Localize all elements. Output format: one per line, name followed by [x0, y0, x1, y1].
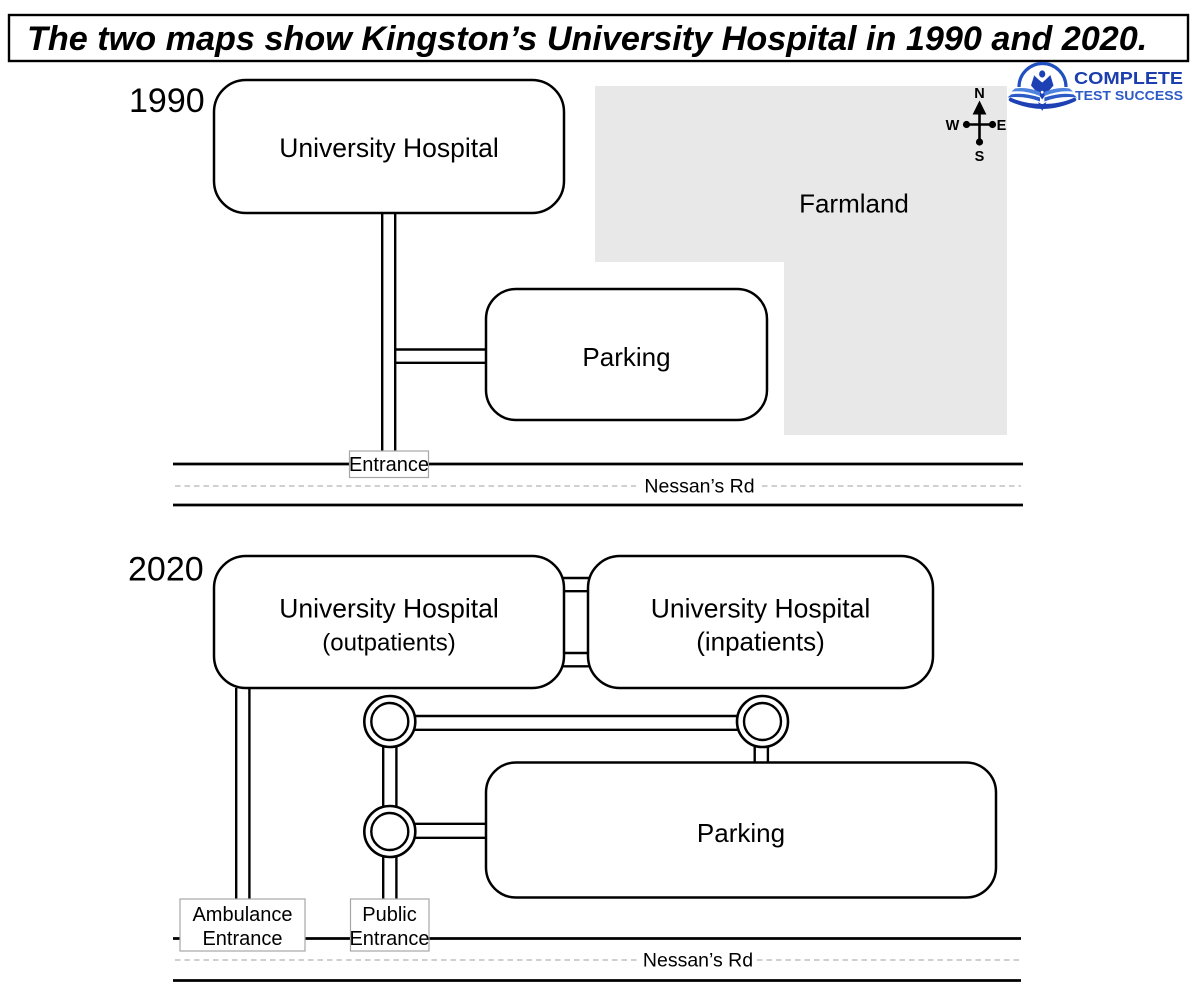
- svg-text:Nessan’s Rd: Nessan’s Rd: [643, 950, 753, 972]
- svg-text:TEST SUCCESS: TEST SUCCESS: [1075, 88, 1183, 103]
- svg-text:Ambulance: Ambulance: [192, 904, 292, 926]
- svg-text:Farmland: Farmland: [799, 189, 909, 219]
- svg-text:Entrance: Entrance: [349, 454, 429, 476]
- svg-text:E: E: [997, 118, 1007, 134]
- svg-text:University Hospital: University Hospital: [279, 133, 498, 163]
- svg-text:W: W: [946, 118, 960, 134]
- svg-text:The two maps show Kingston’s U: The two maps show Kingston’s University …: [27, 20, 1147, 58]
- svg-text:(inpatients): (inpatients): [696, 627, 825, 657]
- svg-text:(outpatients): (outpatients): [322, 630, 455, 657]
- svg-text:Entrance: Entrance: [349, 928, 429, 950]
- svg-text:Parking: Parking: [697, 818, 785, 848]
- svg-text:University Hospital: University Hospital: [279, 594, 498, 624]
- svg-text:COMPLETE: COMPLETE: [1074, 68, 1183, 88]
- svg-text:Public: Public: [362, 904, 416, 926]
- svg-text:N: N: [974, 86, 984, 102]
- svg-text:S: S: [975, 149, 985, 165]
- svg-text:Entrance: Entrance: [202, 928, 282, 950]
- svg-text:Nessan’s Rd: Nessan’s Rd: [644, 476, 754, 498]
- svg-text:Parking: Parking: [582, 342, 670, 372]
- svg-text:University Hospital: University Hospital: [651, 594, 870, 624]
- svg-text:2020: 2020: [128, 551, 204, 589]
- svg-text:1990: 1990: [129, 82, 205, 120]
